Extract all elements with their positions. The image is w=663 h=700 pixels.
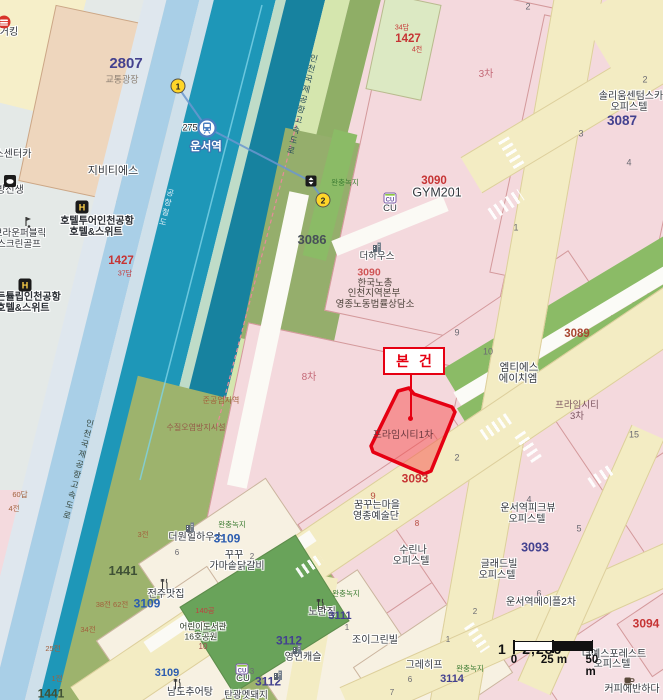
building-icon[interactable] <box>371 241 383 253</box>
map-label: 오피스텔 <box>611 103 648 114</box>
map-label: 히든튤립인천공항 <box>0 293 61 304</box>
map-label: 3089 <box>564 328 590 340</box>
scale-tick-0: 0 <box>511 654 517 666</box>
map-label: 3109 <box>214 533 241 546</box>
map-label: 완충녹지 <box>331 179 359 187</box>
map-label: 인천지역본부 <box>348 289 400 299</box>
map-label: 에이치엠 <box>499 373 538 384</box>
subject-annotation-box: 본 건 <box>383 347 445 375</box>
map-label: 그레히프 <box>406 661 443 672</box>
map-label: 오피스텔 <box>393 557 430 568</box>
map-label: 3전 <box>137 531 148 539</box>
map-label: 6 <box>175 549 179 557</box>
svg-text:CU: CU <box>386 198 395 204</box>
map-label: 1 <box>446 636 450 644</box>
map-label: 1427 <box>108 255 134 267</box>
map-label: 1427 <box>395 33 421 45</box>
map-label: 영종노동법률상담소 <box>336 300 415 310</box>
map-label: 25전 <box>45 645 60 653</box>
map-label: 완충녹지 <box>218 521 246 529</box>
map-label: 37답 <box>118 270 132 277</box>
map-label: 호텔투어인천공항 <box>60 217 134 228</box>
map-label: 운서역메이플2차 <box>506 598 576 609</box>
map-label: 꿈꾸는마을 <box>354 501 400 512</box>
map-label: 꾸꾸 <box>225 551 243 562</box>
map-label: 2 <box>250 553 254 561</box>
map-label: 10 <box>199 643 208 651</box>
map-label: 더하우스 <box>360 252 395 262</box>
map-label: 2 <box>473 608 477 616</box>
map-label: 3093 <box>402 473 429 486</box>
map-label: 스센터카 <box>0 150 31 161</box>
map-label: 수질오염방지시설 <box>167 424 226 432</box>
map-label: 운서역 <box>190 141 222 153</box>
map-label: 커피에반하다 <box>604 685 659 696</box>
map-label: 프라임시티 <box>555 401 599 411</box>
map-label: 140공 <box>195 607 214 615</box>
building-icon[interactable] <box>272 669 284 681</box>
map-label: 준공업지역 <box>203 397 240 405</box>
map-label: 6 <box>408 676 412 684</box>
golf-icon[interactable] <box>21 216 33 228</box>
map-label: 오피스텔 <box>509 515 546 526</box>
map-label: 호텔&스위트 <box>0 304 50 315</box>
map-label: 어린이도서관 <box>180 623 227 632</box>
building-icon[interactable] <box>291 643 303 655</box>
restaurant-icon[interactable] <box>160 579 171 590</box>
map-label: 3087 <box>607 114 637 128</box>
hotel-icon[interactable]: H <box>19 279 32 292</box>
map-label: 2807 <box>109 56 142 72</box>
map-label: CU <box>236 674 250 684</box>
burgerking-icon[interactable] <box>0 15 11 29</box>
map-label: 275 <box>182 123 197 132</box>
annotation-leader-line <box>410 374 412 418</box>
map-label: 3109 <box>134 598 161 611</box>
elevator-icon[interactable] <box>306 176 317 187</box>
cu-store-icon[interactable]: CU <box>236 664 249 675</box>
map-label: 방선생 <box>0 186 24 197</box>
map-label: 3차 <box>479 70 494 81</box>
map-label: 4전 <box>8 505 19 513</box>
map-label: 스크린골프 <box>0 240 41 250</box>
map-label: 1 <box>345 624 349 632</box>
map-label: GYM201 <box>412 186 461 199</box>
map-label: 2 <box>525 2 530 11</box>
map-label: 3114 <box>440 674 464 686</box>
map-label: 1441 <box>38 688 65 700</box>
map-label: 9 <box>454 328 459 337</box>
annotation-leader-dot <box>408 416 413 421</box>
subway-exit-1-badge[interactable]: 1 <box>171 79 186 94</box>
map-label: 브라운퍼블릭 <box>0 229 46 239</box>
map-label: 교통광장 <box>105 75 138 84</box>
map-label: 1전 <box>51 675 62 683</box>
map-label: 15 <box>629 430 639 439</box>
map-label: 16호공원 <box>185 633 218 642</box>
station-icon[interactable] <box>197 118 217 138</box>
map-label: 3 <box>578 129 583 138</box>
map-label: 솔리움센텀스카 <box>599 92 663 103</box>
map-label: 3090 <box>357 267 380 278</box>
map-label: CU <box>383 204 397 214</box>
map-label: 글래드빌 <box>481 560 518 571</box>
cu-store-icon[interactable]: CU <box>384 193 397 204</box>
map-label: 4 <box>626 158 631 167</box>
map-label: 3094 <box>633 618 660 631</box>
map-label: 1 <box>513 223 518 232</box>
cafe-icon[interactable] <box>623 675 635 686</box>
map-label: 호텔&스위트 <box>69 228 122 239</box>
map-label: 조이그린빌 <box>352 636 398 647</box>
map-label: 수린나 <box>399 546 427 557</box>
map-label: 3093 <box>521 541 549 554</box>
map-label: 지비티에스 <box>88 166 139 178</box>
scale-bar: 1 : 2,286 0 25 m 50 m <box>498 641 608 668</box>
map-label: 2 <box>642 75 647 84</box>
bakery-icon[interactable] <box>4 175 16 187</box>
cadastral-map-canvas[interactable]: 본 건 1 : 2,286 0 25 m 50 m 거킹2807교통광장지비티에… <box>0 0 663 700</box>
map-label: 8 <box>415 520 419 528</box>
map-label: 가마솥닭갈비 <box>209 562 264 573</box>
map-label: 1441 <box>109 564 138 578</box>
scale-bar-graphic <box>513 641 593 651</box>
map-label: 4전 <box>412 46 422 53</box>
map-label: 34전 <box>80 626 95 634</box>
svg-text:H: H <box>79 203 86 213</box>
map-label: 완충녹지 <box>332 590 360 598</box>
map-label: 3086 <box>298 233 327 247</box>
map-label: 영종예술단 <box>353 512 399 523</box>
map-label: 거킹 <box>0 28 18 39</box>
map-label: 10 <box>483 347 493 356</box>
map-label: 탄광멧돼지 <box>224 691 268 700</box>
map-label: 8차 <box>302 373 317 384</box>
map-label: 운서역피크뷰 <box>500 504 555 515</box>
subway-exit-2-badge[interactable]: 2 <box>316 193 331 208</box>
hotel-icon[interactable]: H <box>76 201 89 214</box>
map-label: 오피스텔 <box>479 571 516 582</box>
restaurant-icon[interactable] <box>316 599 327 610</box>
map-label: 7 <box>390 689 394 697</box>
map-label: 60답 <box>12 491 27 499</box>
subject-annotation-label: 본 건 <box>396 351 435 371</box>
map-label: 5 <box>576 524 581 533</box>
map-label: 2 <box>454 453 459 462</box>
map-label: 프라임시티1차 <box>373 431 434 442</box>
restaurant-icon[interactable] <box>173 679 184 690</box>
scale-tick-50: 50 m <box>586 654 601 678</box>
map-label: 38전 62전 <box>96 601 129 609</box>
svg-text:CU: CU <box>238 669 247 675</box>
map-label: 3차 <box>570 412 584 422</box>
map-label: 완충녹지 <box>456 665 484 673</box>
scale-tick-25: 25 m <box>541 654 567 666</box>
building-icon[interactable] <box>184 521 196 533</box>
svg-text:H: H <box>22 281 29 291</box>
map-label: 3 <box>250 668 254 676</box>
map-label: 34답 <box>395 24 409 31</box>
map-label: 3111 <box>328 611 351 623</box>
